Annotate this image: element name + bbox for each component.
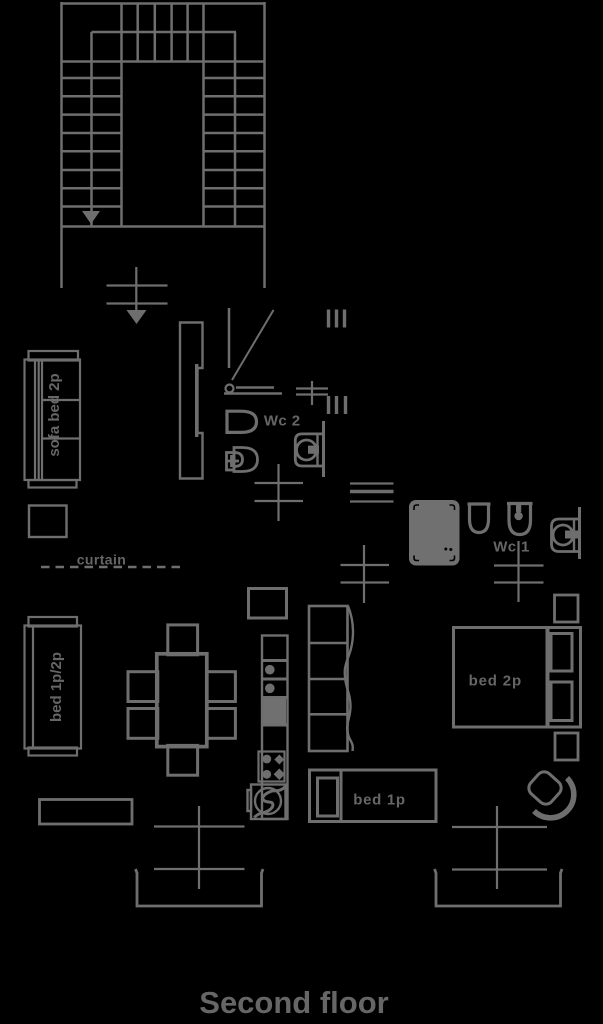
svg-text:Second floor: Second floor	[199, 985, 388, 1020]
svg-text:sofa bed 2p: sofa bed 2p	[46, 373, 63, 456]
svg-text:bed 2p: bed 2p	[469, 673, 522, 690]
svg-text:bed 1p/2p: bed 1p/2p	[48, 652, 65, 722]
svg-text:curtain: curtain	[77, 552, 126, 568]
svg-text:Wc 1: Wc 1	[493, 539, 530, 556]
svg-text:bed 1p: bed 1p	[353, 792, 406, 809]
svg-text:Wc 2: Wc 2	[264, 413, 301, 430]
